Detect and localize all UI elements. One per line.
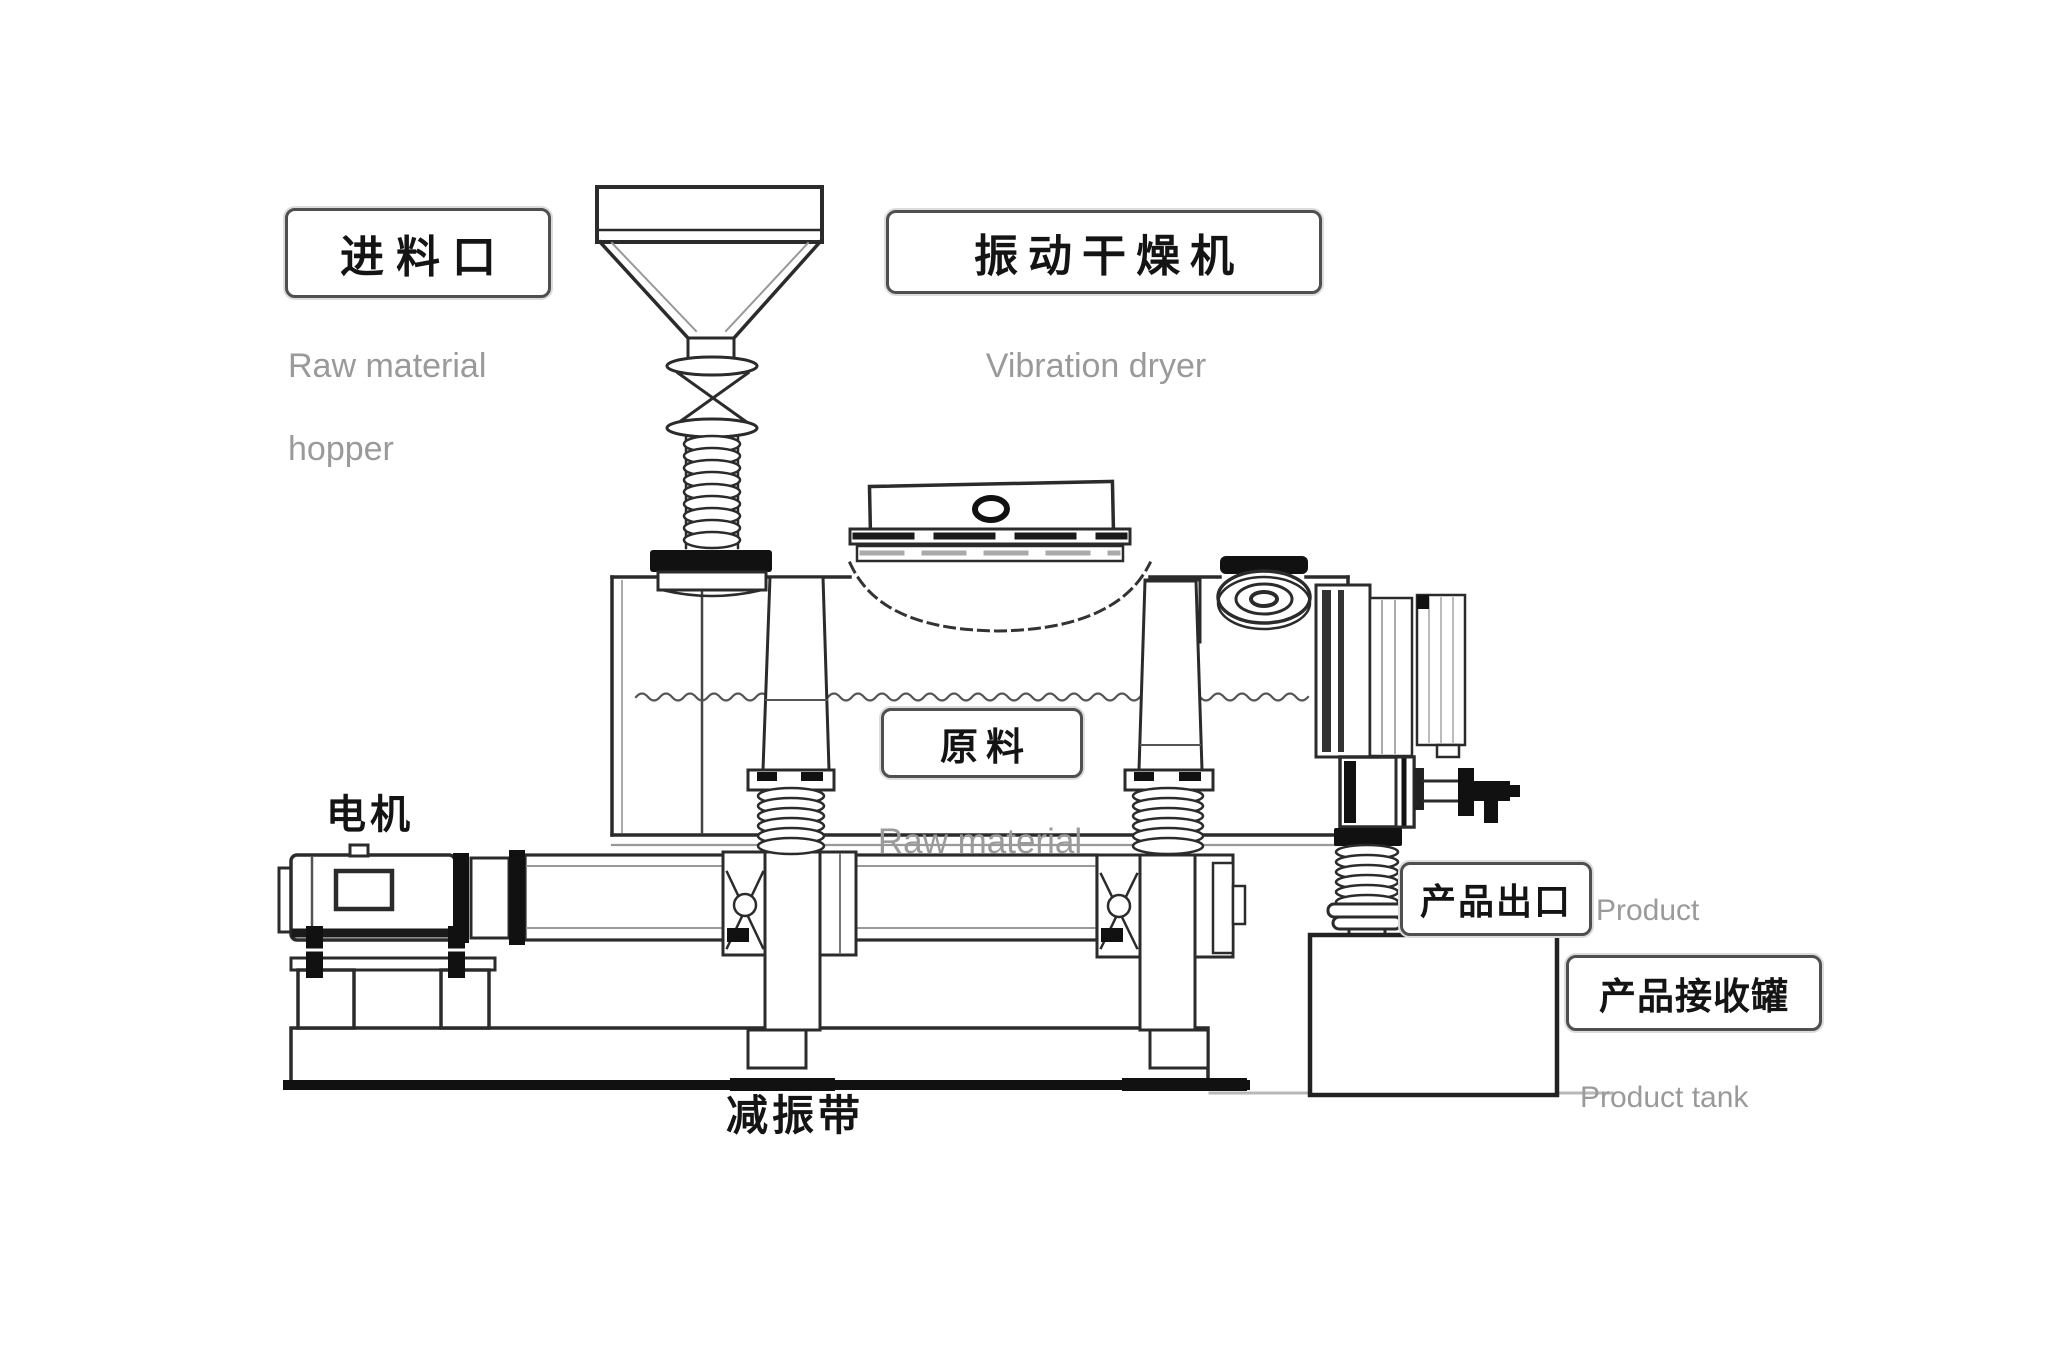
diagram-canvas: 进料口 Raw material hopper 振动干燥机 Vibration … — [0, 0, 2048, 1365]
raw-material-label-zh: 原料 — [940, 716, 1032, 771]
product-tank-label-box: 产品接收罐 — [1566, 955, 1822, 1031]
raw-material-label-box: 原料 — [881, 708, 1083, 778]
product-tank-drawing — [1310, 935, 1557, 1095]
feed-inlet-label-en: Raw material hopper — [288, 305, 486, 471]
product-discharge-label-zh: 产品出口 — [1420, 873, 1572, 925]
feed-inlet-label-zh: 进料口 — [340, 221, 508, 285]
vibration-dryer-label-zh: 振动干燥机 — [974, 220, 1244, 284]
machine-drawing — [0, 0, 2048, 1365]
raw-material-label-en: Raw material — [845, 778, 1115, 863]
right-end-column — [1316, 585, 1465, 757]
feed-funnel — [597, 187, 822, 596]
product-tank-label-en: Product tank — [1580, 1043, 1748, 1116]
product-discharge-label-box: 产品出口 — [1400, 862, 1592, 936]
motor-label: 电机 — [326, 782, 414, 840]
vibration-dryer-label-en: Vibration dryer — [886, 305, 1306, 388]
damping-band-label: 减振带 — [726, 1082, 864, 1143]
feed-inlet-label-box: 进料口 — [285, 208, 551, 298]
vibration-dryer-label-box: 振动干燥机 — [886, 210, 1322, 294]
product-tank-label-zh: 产品接收罐 — [1599, 966, 1789, 1020]
